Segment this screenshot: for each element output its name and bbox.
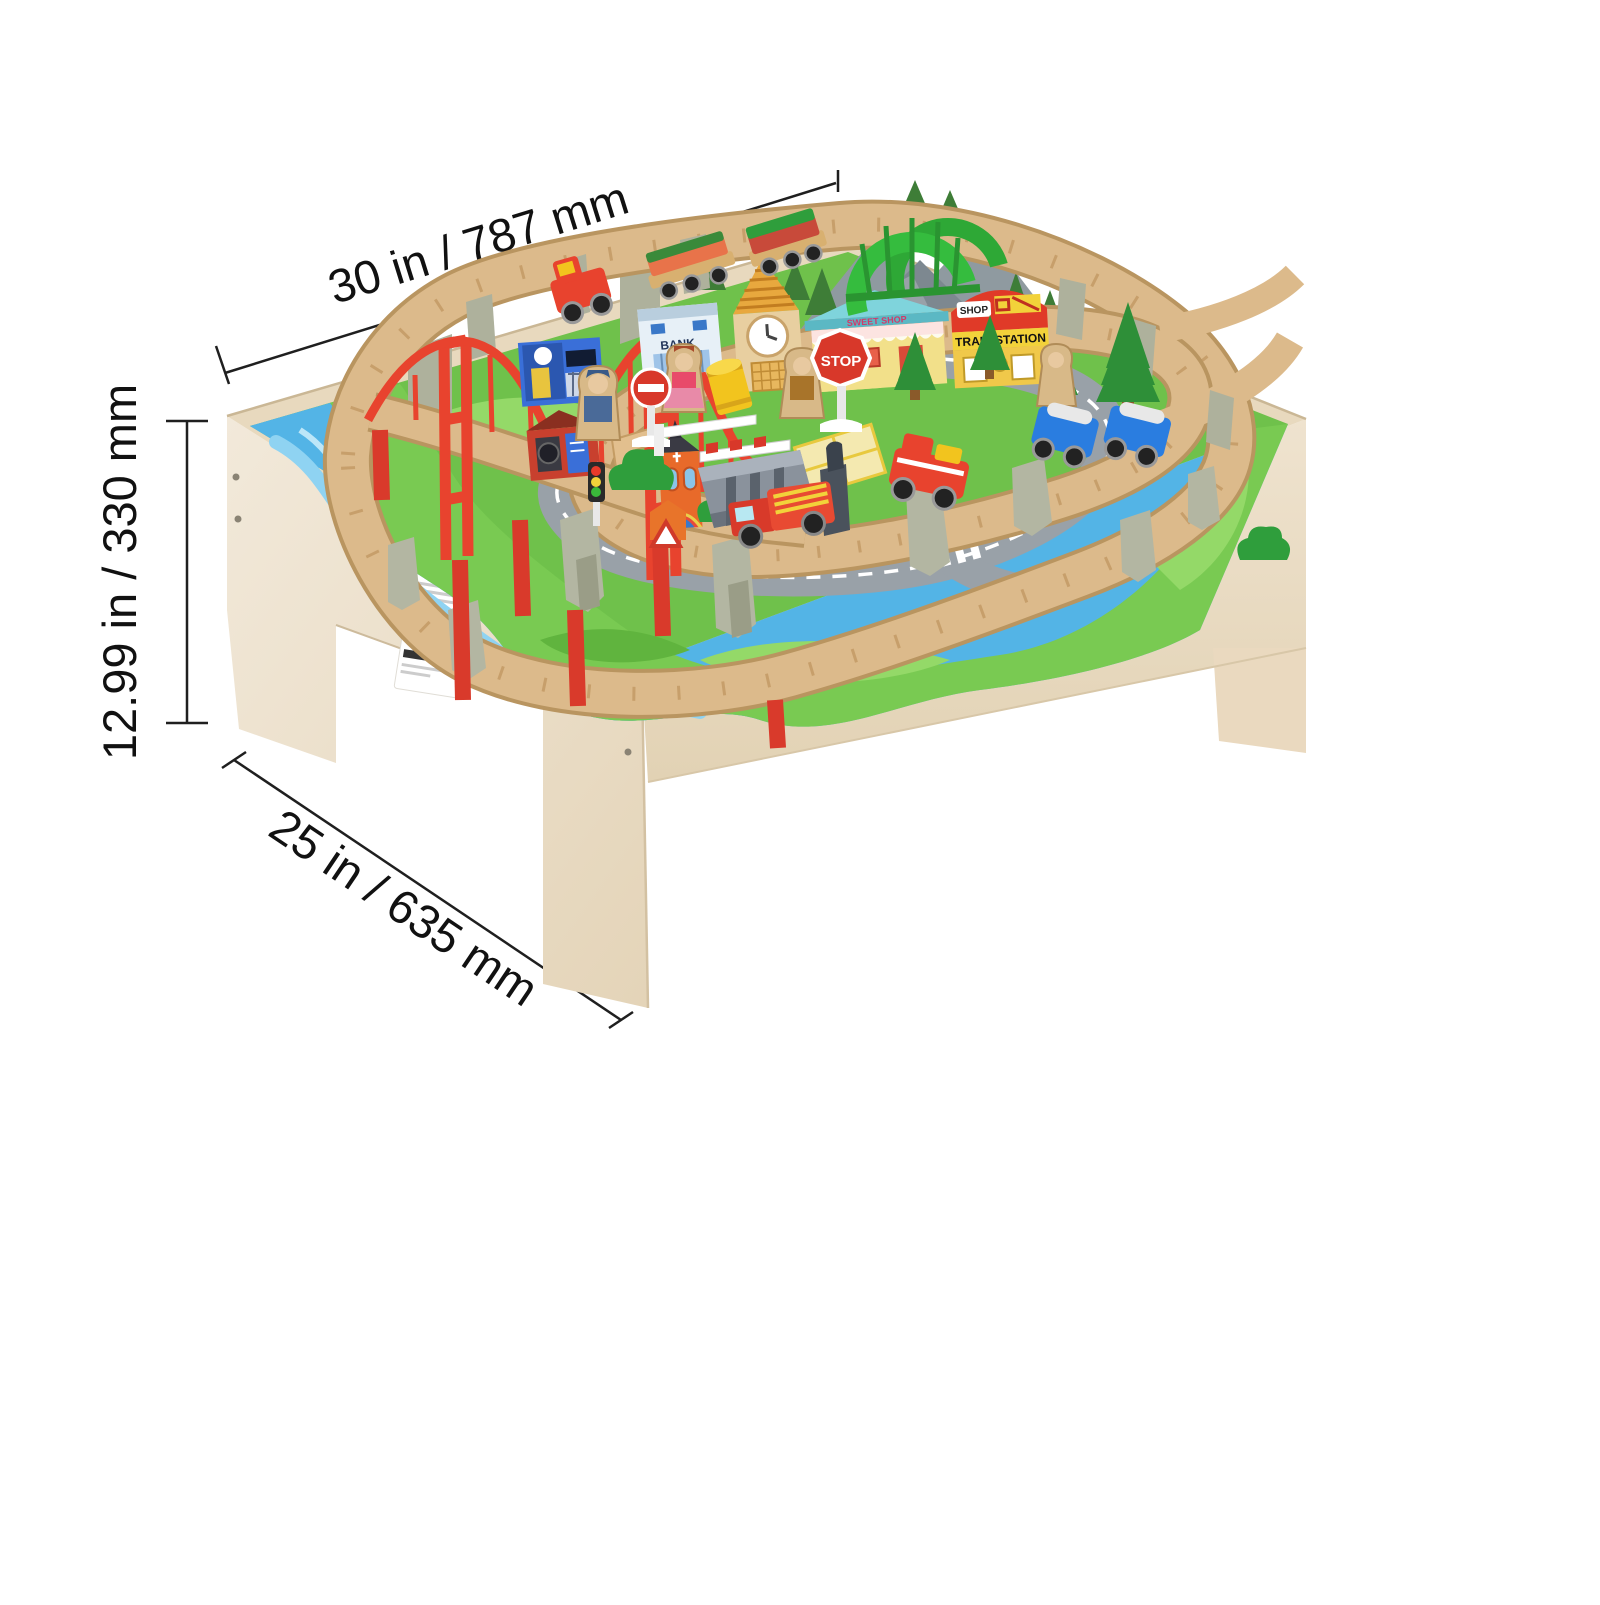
svg-text:SHOP: SHOP xyxy=(960,305,989,317)
svg-text:12.99 in / 330 mm: 12.99 in / 330 mm xyxy=(93,384,146,760)
svg-text:STOP: STOP xyxy=(821,353,862,370)
